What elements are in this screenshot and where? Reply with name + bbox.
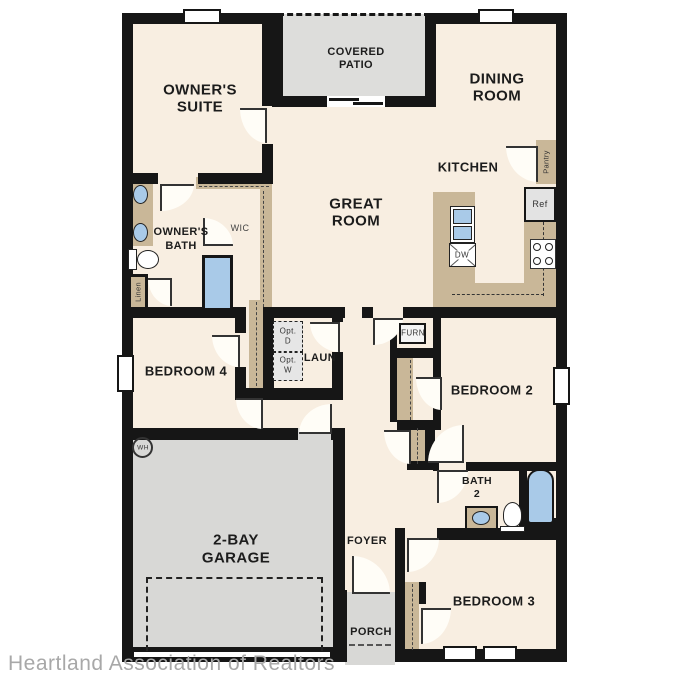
- garage-label-2: GARAGE: [202, 550, 270, 567]
- ref-label: Ref: [532, 199, 547, 209]
- toilet2-base: [500, 526, 525, 532]
- bath2-label-2: 2: [474, 488, 480, 500]
- porch-edge-dashed: [349, 644, 391, 646]
- bedroom3-window-b: [483, 646, 517, 661]
- dining-room-label-1: DINING: [470, 71, 525, 88]
- stove-burner-3: [533, 257, 541, 265]
- stove-burner-2: [545, 243, 553, 251]
- watermark-text: Heartland Association of Realtors: [8, 652, 335, 676]
- dining-window: [478, 9, 514, 24]
- foyer-label: FOYER: [347, 535, 387, 547]
- wic-shelf-dashed-top: [199, 186, 269, 187]
- bedroom3-closet-stub: [419, 582, 426, 604]
- bedroom2-closet-west-wall: [390, 358, 397, 422]
- owners-suite-label-1: OWNER'S: [163, 82, 237, 99]
- patio-wall-left: [272, 13, 283, 107]
- porch-label: PORCH: [350, 626, 392, 638]
- wic-label: WIC: [231, 223, 250, 233]
- owners-suite-east-wall-upper: [262, 24, 273, 106]
- kitchen-south-wall: [403, 307, 567, 318]
- opt-washer-label-2: W: [284, 366, 292, 375]
- furn-closet-south-wall: [390, 348, 435, 358]
- kitchen-bottom-counter: [433, 283, 556, 310]
- stove-burner-4: [545, 257, 553, 265]
- water-heater-label: WH: [137, 445, 149, 452]
- owners-bath-sink-2: [133, 223, 148, 242]
- stove-burner-1: [533, 243, 541, 251]
- kitchen-sink-basin-bottom: [453, 226, 472, 240]
- opt-washer-label-1: Opt.: [280, 356, 297, 365]
- floor-plan: Ref DW OWNER'S SUITE COVERED PATI: [0, 0, 687, 687]
- porch-west-wall: [337, 590, 347, 662]
- owners-toilet-bowl: [137, 250, 159, 269]
- covered-patio-label-1: COVERED: [327, 46, 384, 58]
- garage-label-1: 2-BAY: [213, 532, 259, 549]
- opt-dryer-label-1: Opt.: [280, 327, 297, 336]
- linen-label: Linen: [134, 282, 143, 302]
- kitchen-sink-basin-top: [453, 209, 472, 224]
- pantry-label: Pantry: [542, 150, 551, 173]
- covered-patio-label-2: PATIO: [339, 59, 373, 71]
- bedroom4-east-wall-lower: [235, 367, 246, 388]
- toilet2-bowl: [503, 502, 522, 527]
- owners-toilet-tank: [128, 249, 137, 270]
- counter-dashed-horizontal: [452, 294, 544, 295]
- bedroom2-label: BEDROOM 2: [451, 383, 533, 398]
- patio-open-edge-dashed: [278, 13, 430, 16]
- bath2-sink: [472, 511, 490, 525]
- bathtub: [527, 469, 554, 524]
- owners-bath-sink-1: [133, 185, 148, 204]
- bedroom2-closet-rod: [410, 360, 411, 420]
- bath2-label-1: BATH: [462, 475, 492, 487]
- bedroom3-window-a: [443, 646, 477, 661]
- dining-room-label-2: ROOM: [473, 88, 521, 105]
- hall-closet-rod: [417, 428, 418, 464]
- patio-wall-right: [425, 13, 436, 107]
- suite-bath-wall-a: [122, 173, 158, 184]
- kitchen-label: KITCHEN: [438, 160, 499, 175]
- owners-bath-label-1: OWNER'S: [154, 226, 209, 238]
- bedroom4-window: [117, 355, 134, 392]
- furn-label: FURN: [401, 329, 425, 338]
- wall-left: [122, 13, 133, 662]
- suite-bath-wall-b: [198, 173, 273, 184]
- owners-suite-label-2: SUITE: [177, 99, 223, 116]
- hall-north-wall-b: [362, 307, 373, 318]
- laundry-label: LAUN: [304, 352, 336, 364]
- bedroom3-closet-rod: [412, 584, 413, 650]
- patio-slider-leaf-b: [353, 102, 383, 105]
- bedroom4-closet-rod: [256, 302, 257, 386]
- owners-bath-label-2: BATH: [165, 240, 196, 252]
- bedroom4-label: BEDROOM 4: [145, 364, 227, 379]
- bedroom2-window: [553, 367, 570, 405]
- garage-door-dashed: [146, 577, 323, 651]
- bedroom3-label: BEDROOM 3: [453, 594, 535, 609]
- great-room-label-2: ROOM: [332, 213, 380, 230]
- wic-shelf-dashed-right: [263, 191, 264, 307]
- bedroom3-west-wall: [395, 528, 405, 662]
- shower: [202, 255, 233, 311]
- patio-slider-leaf-a: [329, 98, 359, 101]
- wic-shelf-right: [260, 189, 272, 311]
- dw-label: DW: [454, 251, 470, 260]
- wall-right: [556, 13, 567, 662]
- opt-dryer-label-2: D: [285, 337, 291, 346]
- great-room-label-1: GREAT: [329, 196, 382, 213]
- bedroom4-east-wall-upper: [235, 307, 246, 333]
- owners-suite-window: [183, 9, 221, 24]
- bedroom2-south-wall-b: [466, 462, 567, 471]
- hall-north-wall-a: [333, 307, 342, 318]
